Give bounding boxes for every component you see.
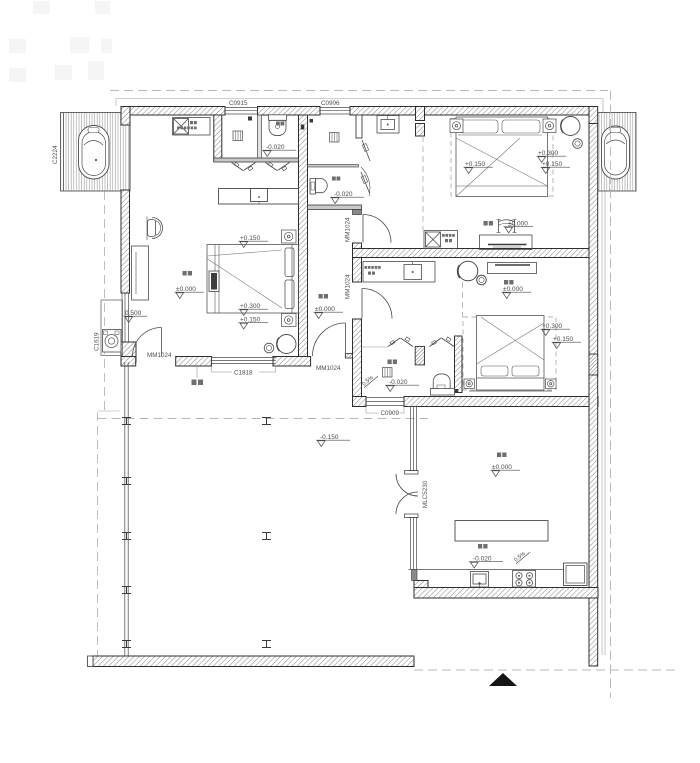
- svg-text:C1818: C1818: [234, 370, 253, 377]
- svg-text:C0906: C0906: [321, 100, 340, 107]
- svg-text:MM1024: MM1024: [316, 365, 341, 372]
- svg-text:MLC5230: MLC5230: [422, 480, 429, 508]
- svg-text:C1619: C1619: [94, 332, 101, 351]
- svg-text:MM1024: MM1024: [345, 274, 352, 299]
- svg-text:C0915: C0915: [229, 100, 248, 107]
- svg-text:MM1024: MM1024: [345, 217, 352, 242]
- svg-text:C2224: C2224: [52, 145, 59, 164]
- svg-text:C0909: C0909: [381, 410, 400, 417]
- svg-text:MM1024: MM1024: [147, 352, 172, 359]
